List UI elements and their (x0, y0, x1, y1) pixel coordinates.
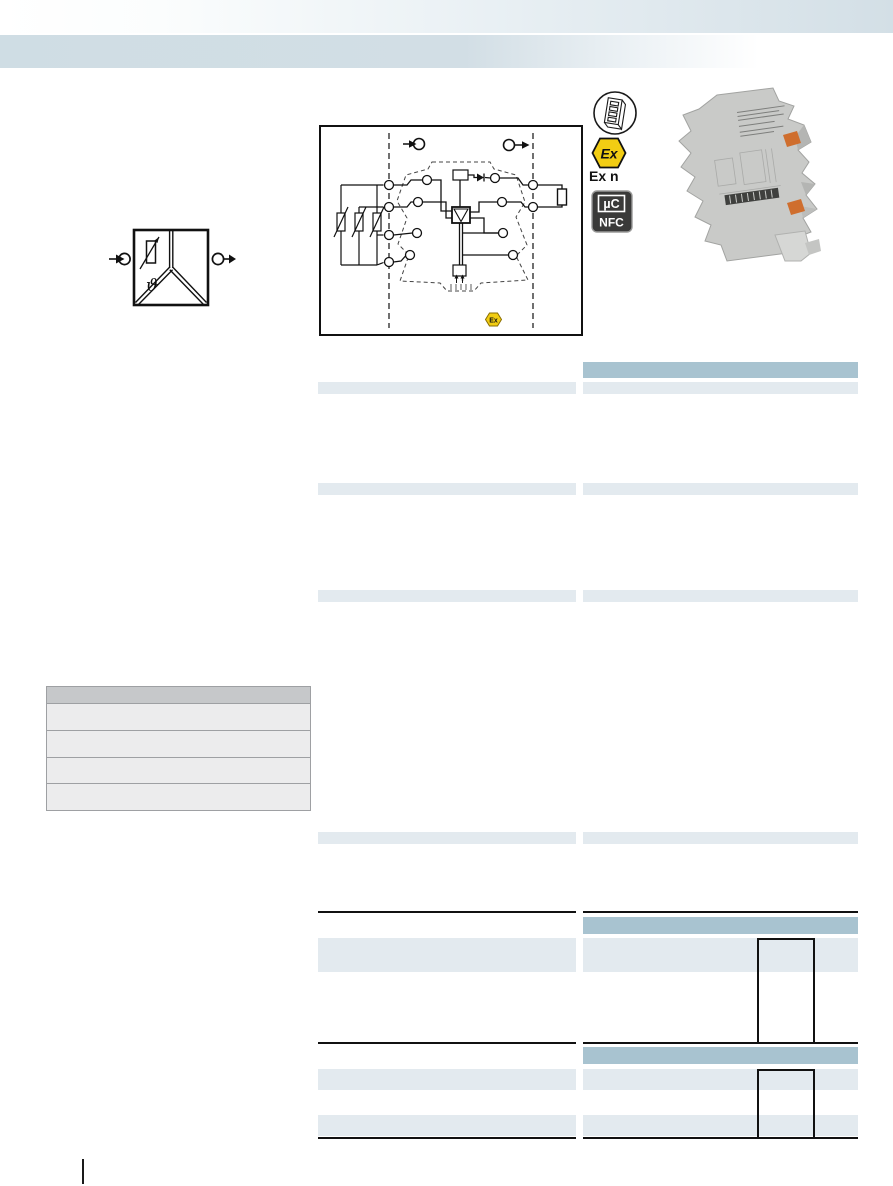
spec-row-band (318, 1069, 576, 1090)
footer-page-divider (82, 1159, 84, 1184)
header-gradient-top-strip (0, 0, 893, 33)
transducer-symbol: ϑ (108, 228, 236, 308)
order-table (46, 686, 311, 811)
order-table-row (47, 783, 310, 810)
section-header-bar (583, 1047, 858, 1064)
ex-hexagon-icon: Ex (591, 137, 627, 169)
section-header-bar (583, 362, 858, 378)
thick-rule (583, 911, 858, 913)
output-arrow-icon (212, 253, 236, 264)
thermistor-glyph (140, 237, 159, 269)
theta-symbol: ϑ (146, 276, 158, 296)
thick-rule (318, 1137, 576, 1139)
order-table-header (47, 687, 310, 703)
spec-row-band (318, 483, 576, 495)
svg-text:NFC: NFC (599, 216, 624, 230)
spec-row-band (318, 832, 576, 844)
svg-text:µC: µC (603, 197, 619, 211)
din-rail-foot (775, 231, 811, 261)
thick-rule (318, 911, 576, 913)
order-table-row (47, 703, 310, 730)
product-photo (655, 85, 855, 267)
connection-block-diagram: Ex (319, 125, 583, 336)
spec-row-band (583, 1115, 858, 1136)
waveform-box (757, 1069, 815, 1139)
thick-rule (318, 1042, 576, 1044)
spec-row-band (318, 1115, 576, 1136)
thick-rule (583, 1137, 858, 1139)
diagram-ex-hexagon: Ex (486, 313, 502, 326)
order-table-row (47, 730, 310, 757)
spec-row-band (583, 382, 858, 394)
spec-row-band (583, 938, 858, 972)
svg-text:Ex: Ex (600, 146, 618, 162)
thick-rule (583, 1042, 858, 1044)
spec-row-band (583, 590, 858, 602)
order-table-row (47, 757, 310, 784)
header-gradient-band (0, 35, 893, 68)
datasheet-page: ϑ (0, 0, 893, 1186)
uc-nfc-icon: µC NFC (591, 190, 633, 233)
dip-switch-icon (592, 90, 638, 136)
spec-row-band (583, 832, 858, 844)
waveform-box (757, 938, 815, 1044)
input-arrow-icon (109, 253, 130, 264)
spec-row-band (318, 590, 576, 602)
ex-n-caption: Ex n (589, 168, 639, 184)
svg-text:Ex: Ex (489, 318, 498, 325)
isolation-amplifier (452, 207, 470, 223)
spec-row-band (318, 938, 576, 972)
section-header-bar (583, 917, 858, 934)
spec-row-band (583, 483, 858, 495)
spec-row-band (583, 1069, 858, 1090)
spec-row-band (318, 382, 576, 394)
